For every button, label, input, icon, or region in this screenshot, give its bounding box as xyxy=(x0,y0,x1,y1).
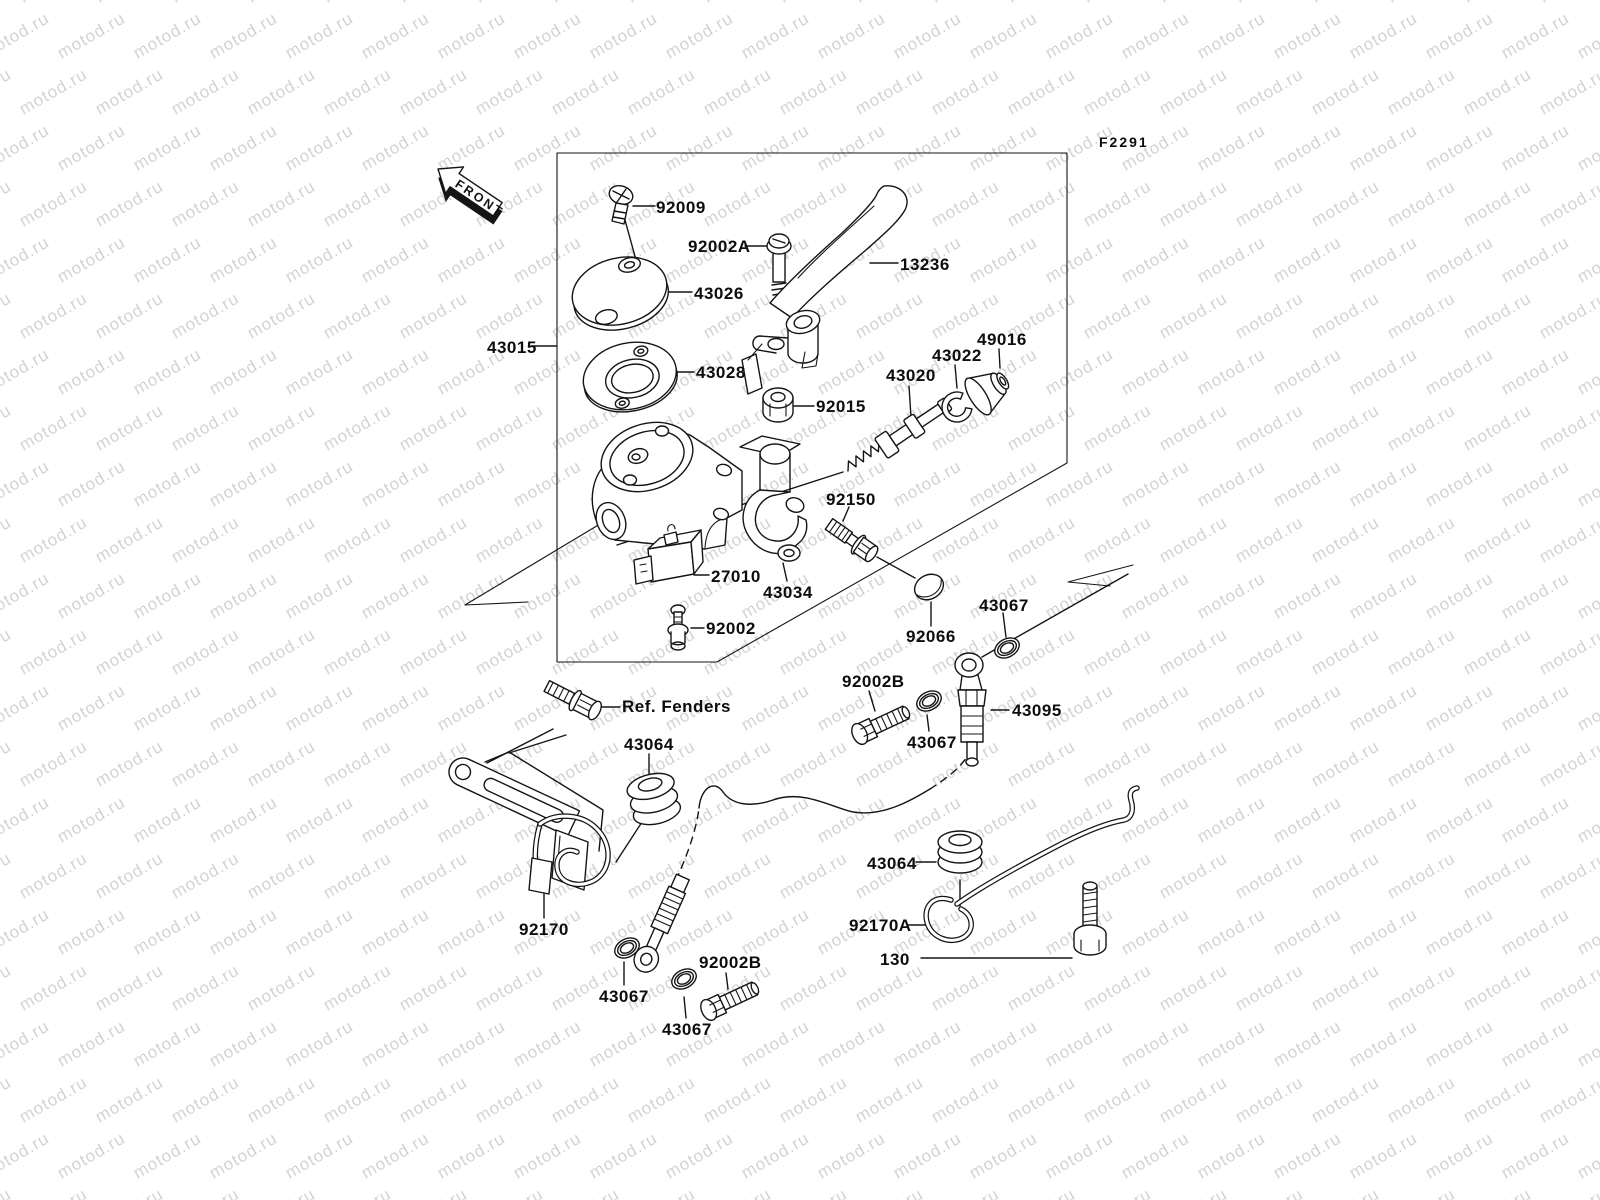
part-label-43067-a: 43067 xyxy=(979,596,1029,616)
part-label-43064-a: 43064 xyxy=(624,735,674,755)
plane-arrow-left xyxy=(465,512,620,605)
part-label-92170: 92170 xyxy=(519,920,569,940)
plane-arrow-right xyxy=(1068,565,1133,586)
screw-92002 xyxy=(668,605,688,650)
part-label-43067-c: 43067 xyxy=(599,987,649,1007)
part-label-43067-d: 43067 xyxy=(662,1020,712,1040)
washer-43067-bottom-mid xyxy=(668,965,699,993)
screw-92009 xyxy=(607,183,635,224)
reservoir-cap-43026 xyxy=(565,247,675,339)
lever-holder-43034 xyxy=(740,436,807,561)
part-label-43064-b: 43064 xyxy=(867,854,917,874)
grommet-43064-upper xyxy=(624,769,683,829)
part-label-92150: 92150 xyxy=(826,490,876,510)
bolt-130 xyxy=(1074,882,1106,955)
banjo-bolt-92002B-lower xyxy=(698,977,763,1023)
nut-92015 xyxy=(763,388,793,422)
part-label-43026: 43026 xyxy=(694,284,744,304)
part-label-43015: 43015 xyxy=(487,338,537,358)
part-label-92002B-b: 92002B xyxy=(699,953,762,973)
hose-fitting-43095 xyxy=(955,653,986,766)
plug-92066 xyxy=(910,569,948,604)
part-label-49016: 49016 xyxy=(977,330,1027,350)
part-label-27010: 27010 xyxy=(711,567,761,587)
part-label-92009: 92009 xyxy=(656,198,706,218)
lower-brake-hose xyxy=(630,872,694,976)
diaphragm-43028 xyxy=(577,334,683,420)
banjo-bolt-92002B-upper xyxy=(849,701,914,747)
part-label-92002: 92002 xyxy=(706,619,756,639)
fender-bracket xyxy=(444,753,588,890)
brake-lever-13236 xyxy=(742,186,907,394)
part-label-43067-b: 43067 xyxy=(907,733,957,753)
bolt-92150 xyxy=(823,515,881,565)
bolt-ref-fenders xyxy=(542,676,605,722)
part-label-92170A: 92170A xyxy=(849,916,912,936)
washer-43067-mid xyxy=(913,687,944,715)
part-label-92002A: 92002A xyxy=(688,237,751,257)
washer-43067-upper-right xyxy=(991,634,1022,662)
part-label-43095: 43095 xyxy=(1012,701,1062,721)
part-label-ref-fenders: Ref. Fenders xyxy=(622,697,731,717)
part-label-130: 130 xyxy=(880,950,910,970)
part-label-92015: 92015 xyxy=(816,397,866,417)
part-label-92066: 92066 xyxy=(906,627,956,647)
figure-code: F2291 xyxy=(1099,134,1149,150)
part-label-43028: 43028 xyxy=(696,363,746,383)
part-label-92002B-a: 92002B xyxy=(842,672,905,692)
grommet-43064-lower xyxy=(938,831,982,873)
part-label-43020: 43020 xyxy=(886,366,936,386)
front-direction-arrow: FRONT xyxy=(425,156,512,232)
part-label-43022: 43022 xyxy=(932,346,982,366)
part-label-13236: 13236 xyxy=(900,255,950,275)
part-label-43034: 43034 xyxy=(763,583,813,603)
parts-diagram-page: motod.rumotod.rumotod.rumotod.rumotod.ru… xyxy=(0,0,1600,1200)
